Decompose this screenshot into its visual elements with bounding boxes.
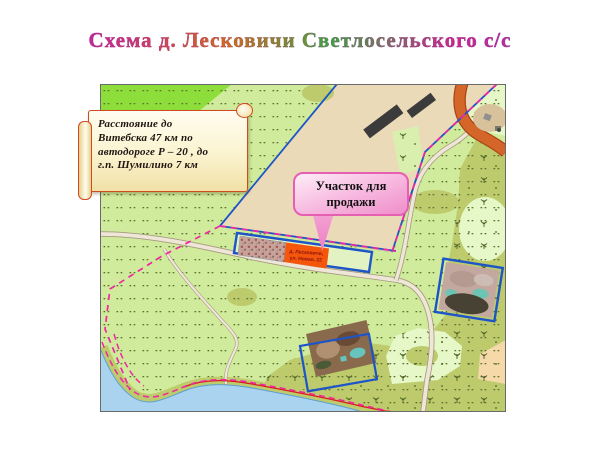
distance-scroll-banner: Расстояние до Витебска 47 км по автодоро… [88, 110, 248, 192]
distance-line-1: Расстояние до [98, 118, 243, 132]
distance-line-2: Витебска 47 км по [98, 132, 243, 146]
presentation-slide: Схема д. Лесковичи Светлосельского с/с [0, 0, 600, 450]
settlement-blob [473, 104, 506, 132]
distance-line-4: г.п. Шумилино 7 км [98, 159, 243, 173]
for-sale-callout: Участок для продажи [293, 172, 409, 216]
for-sale-callout-text: Участок для продажи [295, 174, 407, 211]
scroll-roll-edge [78, 121, 92, 200]
sale-plot-label: д. Лесковичи, ул. Новая, 22 [289, 249, 324, 264]
distance-text: Расстояние до Витебска 47 км по автодоро… [89, 111, 247, 173]
slide-title: Схема д. Лесковичи Светлосельского с/с [0, 28, 600, 53]
distance-line-3: автодороге Р – 20 , до [98, 146, 243, 160]
scroll-curl-icon [236, 103, 253, 118]
